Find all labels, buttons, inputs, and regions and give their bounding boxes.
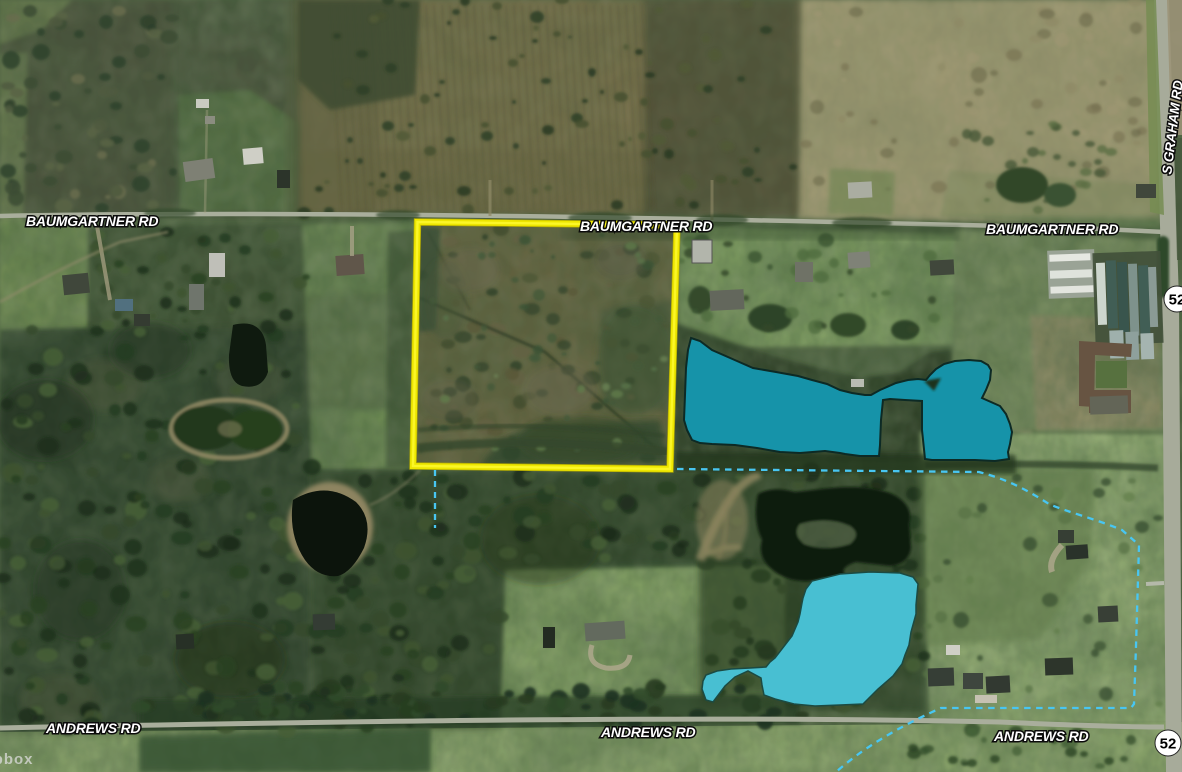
svg-text:mapbox: mapbox (0, 751, 34, 768)
svg-text:ANDREWS RD: ANDREWS RD (993, 728, 1089, 744)
svg-text:ANDREWS RD: ANDREWS RD (45, 720, 141, 736)
svg-text:BAUMGARTNER RD: BAUMGARTNER RD (986, 221, 1118, 237)
svg-text:52: 52 (1169, 292, 1182, 309)
svg-text:52: 52 (1160, 736, 1177, 753)
svg-text:ANDREWS RD: ANDREWS RD (600, 724, 696, 740)
svg-text:BAUMGARTNER RD: BAUMGARTNER RD (580, 218, 712, 234)
svg-text:BAUMGARTNER RD: BAUMGARTNER RD (26, 213, 158, 229)
